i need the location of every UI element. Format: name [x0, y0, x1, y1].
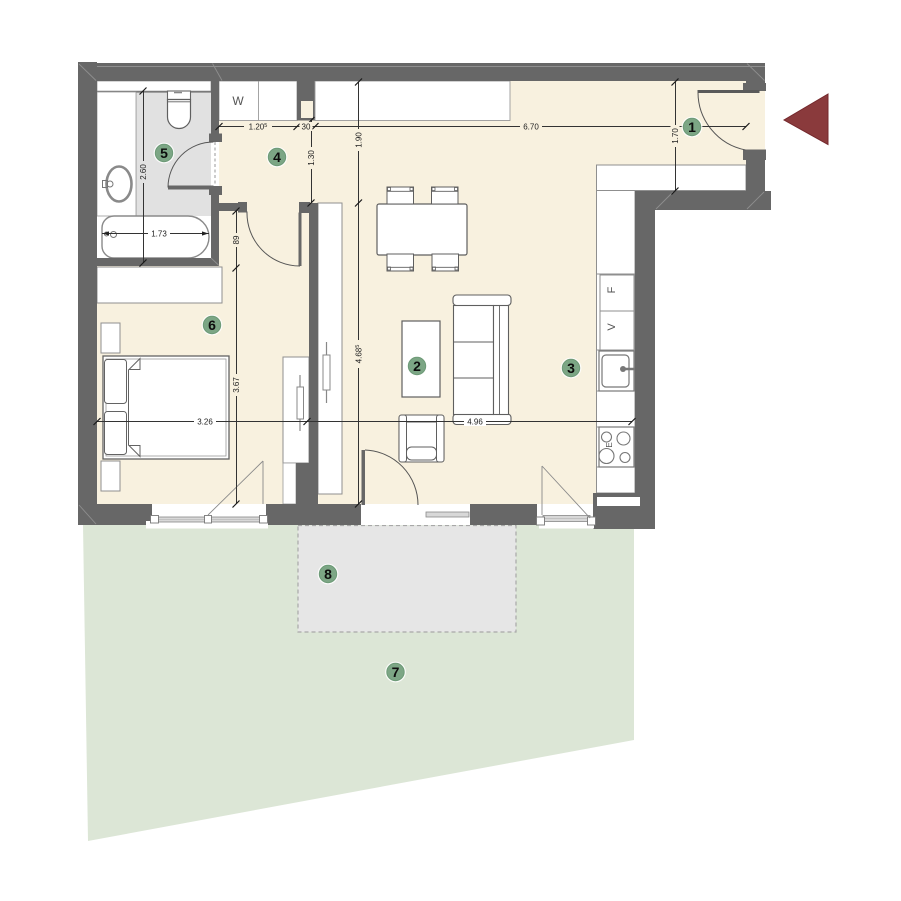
svg-text:2.60: 2.60	[139, 164, 148, 180]
svg-text:1.30: 1.30	[307, 150, 316, 166]
svg-text:7: 7	[392, 664, 400, 680]
svg-text:3: 3	[567, 360, 575, 376]
svg-text:89: 89	[232, 235, 241, 244]
svg-text:F: F	[606, 286, 618, 293]
svg-text:W: W	[232, 94, 244, 108]
svg-text:30: 30	[302, 123, 311, 132]
svg-text:6.70: 6.70	[523, 123, 539, 132]
svg-text:V: V	[606, 323, 618, 331]
svg-text:8: 8	[324, 566, 332, 582]
svg-text:3.67: 3.67	[232, 377, 241, 393]
svg-text:4: 4	[273, 149, 281, 165]
svg-text:5: 5	[160, 145, 168, 161]
svg-text:E: E	[605, 442, 614, 447]
svg-text:1.70: 1.70	[671, 128, 680, 144]
svg-text:4.96: 4.96	[467, 418, 483, 427]
svg-text:1: 1	[688, 119, 696, 135]
svg-text:6: 6	[208, 317, 216, 333]
svg-text:2: 2	[413, 358, 421, 374]
svg-text:1.73: 1.73	[151, 230, 167, 239]
svg-text:1.90: 1.90	[355, 132, 364, 148]
svg-text:3.26: 3.26	[197, 418, 213, 427]
